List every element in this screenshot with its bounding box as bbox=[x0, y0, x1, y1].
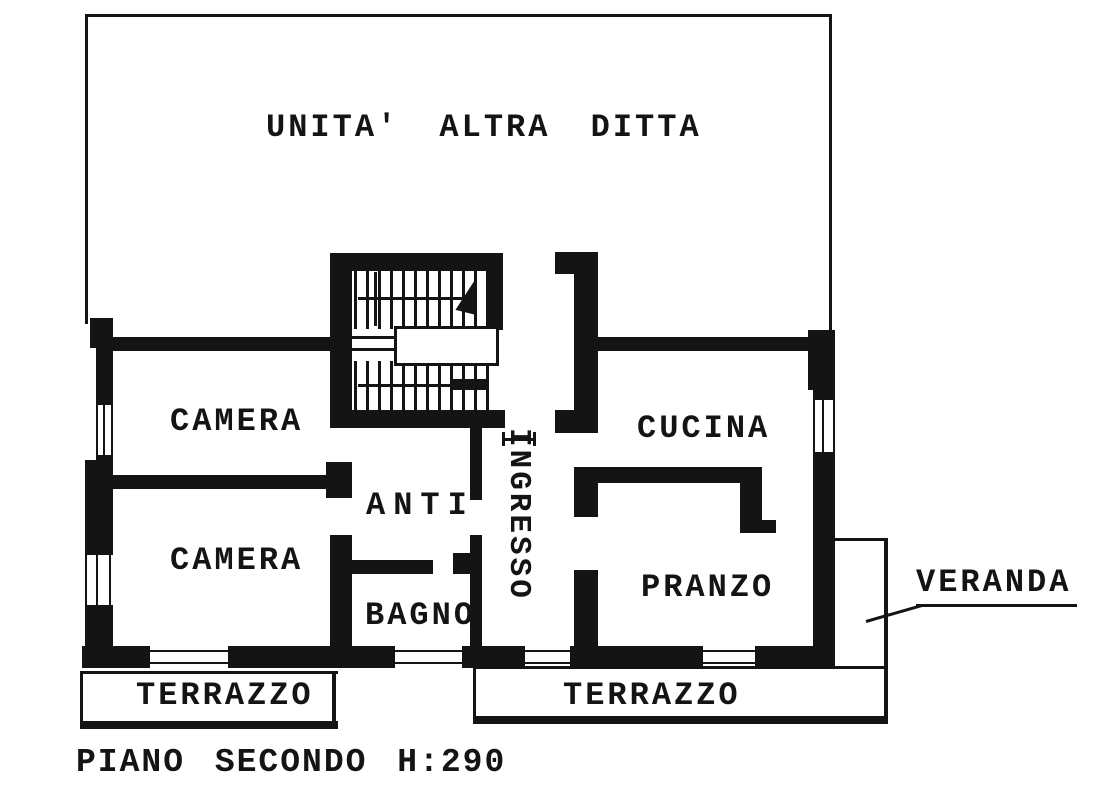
stair-wall-left bbox=[330, 253, 352, 420]
room-label-bagno: BAGNO bbox=[365, 600, 476, 632]
room-label-ingresso: INGRESSO bbox=[503, 428, 534, 601]
wall-flare-top bbox=[555, 252, 598, 274]
door-sill-terrazzo-left bbox=[150, 650, 228, 664]
wall-bottom-1 bbox=[82, 646, 150, 668]
wall-ingresso-right-upper bbox=[574, 252, 598, 433]
stair-travel-arrow-lower bbox=[450, 379, 487, 390]
wall-camera-divider bbox=[107, 475, 328, 489]
upper-unit-border-right bbox=[829, 14, 832, 334]
wall-top-left bbox=[96, 337, 348, 351]
terrazzo-left-border-top bbox=[80, 671, 338, 674]
wall-anti-left-pillar bbox=[330, 463, 352, 497]
terrazzo-right-border-bottom bbox=[473, 716, 888, 724]
stair-landing bbox=[394, 326, 499, 366]
room-label-cucina: CUCINA bbox=[637, 413, 770, 445]
terrazzo-left-border-left bbox=[80, 671, 83, 728]
wall-right-upper bbox=[813, 330, 835, 400]
veranda-border-right bbox=[884, 538, 888, 722]
floor-plan: UNITA' ALTRA DITTA bbox=[0, 0, 1106, 796]
stair-travel-tick bbox=[374, 272, 377, 326]
stair-wall-right bbox=[487, 253, 503, 330]
room-label-camera-lower: CAMERA bbox=[170, 545, 303, 577]
wall-bottom-2 bbox=[228, 646, 395, 668]
door-sill-ingresso bbox=[525, 650, 570, 664]
upper-unit-border-left bbox=[85, 14, 88, 324]
plan-caption: PIANO SECONDO H:290 bbox=[76, 746, 506, 779]
wall-ingresso-right-lower bbox=[574, 570, 598, 660]
wall-bagno-top bbox=[348, 560, 433, 574]
upper-unit-label: UNITA' ALTRA DITTA bbox=[266, 112, 702, 144]
wall-left-upper bbox=[96, 320, 113, 405]
upper-unit-border-top bbox=[85, 14, 832, 17]
stair-winder-line-1 bbox=[352, 336, 396, 339]
stair-travel-line-lower bbox=[358, 384, 458, 387]
terrazzo-right-border-top bbox=[473, 666, 888, 669]
veranda-leader-line bbox=[866, 604, 923, 623]
stair-winder-line-2 bbox=[352, 348, 396, 351]
window-cucina bbox=[813, 400, 835, 452]
room-label-veranda: VERANDA bbox=[916, 567, 1077, 607]
room-label-camera-upper: CAMERA bbox=[170, 406, 303, 438]
wall-flare-bottom bbox=[555, 410, 598, 433]
window-camera-lower bbox=[85, 555, 111, 605]
wall-right-lower bbox=[813, 452, 835, 668]
wall-anti-left-lower bbox=[330, 535, 352, 660]
room-label-pranzo: PRANZO bbox=[641, 572, 774, 604]
room-label-terrazzo-right: TERRAZZO bbox=[563, 680, 741, 712]
window-sill-bagno bbox=[395, 650, 462, 664]
door-sill-pranzo bbox=[703, 650, 755, 664]
wall-top-right bbox=[598, 337, 817, 351]
window-camera-upper bbox=[96, 405, 113, 455]
terrazzo-left-border-right bbox=[332, 671, 336, 728]
wall-cucina-stub-horiz bbox=[740, 520, 776, 533]
room-label-anti: ANTI bbox=[366, 490, 475, 522]
veranda-border-top bbox=[835, 538, 887, 541]
wall-bottom-5 bbox=[755, 646, 835, 668]
wall-cucina-bottom bbox=[574, 467, 762, 483]
terrazzo-left-border-bottom bbox=[80, 721, 338, 729]
stair-wall-top bbox=[330, 253, 503, 271]
room-label-terrazzo-left: TERRAZZO bbox=[136, 680, 314, 712]
